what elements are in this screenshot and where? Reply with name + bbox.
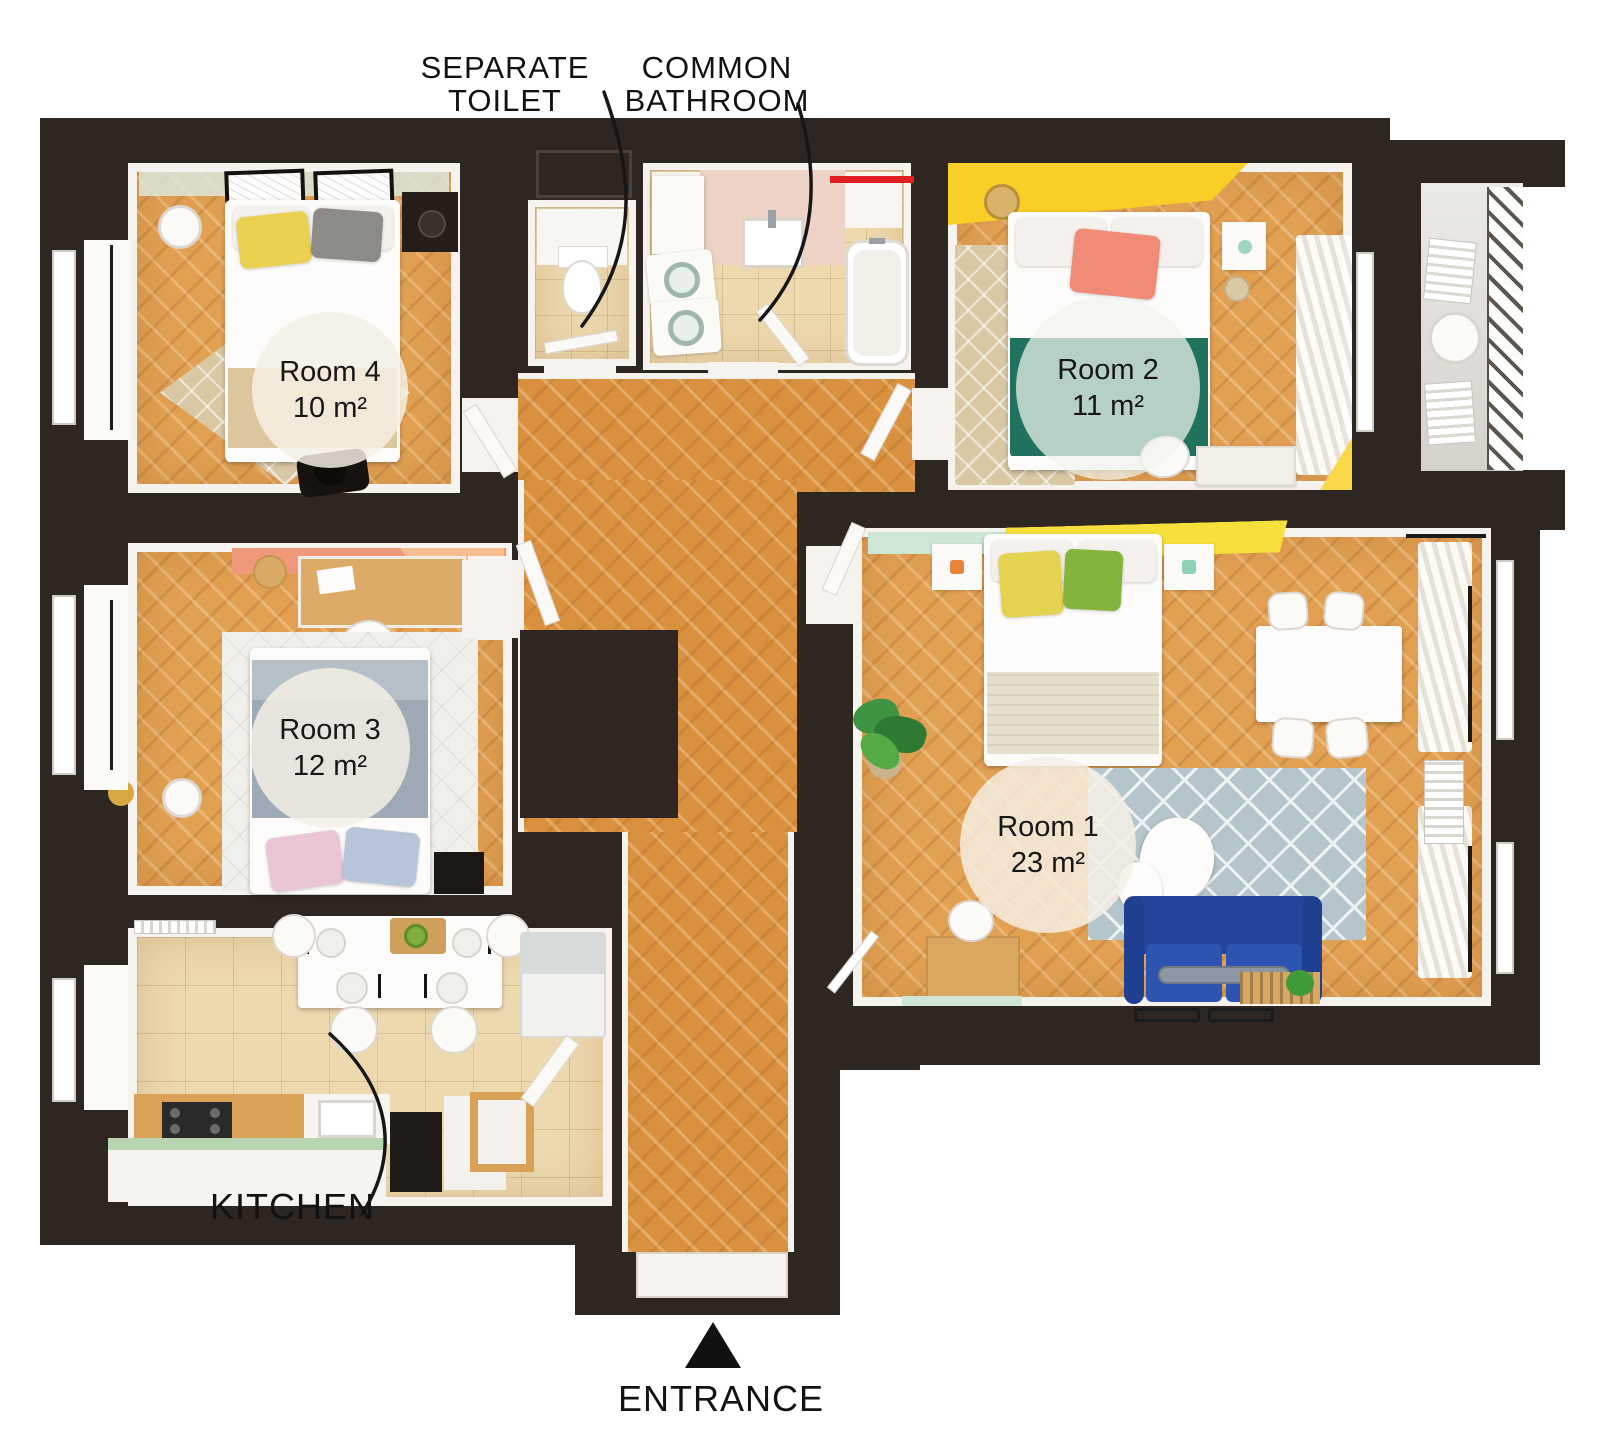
nightstand-decor-icon bbox=[1182, 560, 1196, 574]
plate-icon bbox=[316, 928, 346, 958]
salad-bowl-icon bbox=[404, 924, 428, 948]
bathroom-cabinet bbox=[652, 176, 704, 254]
kitchen-window-sill bbox=[84, 965, 128, 1110]
room4-label: Room 4 10 m² bbox=[252, 312, 408, 468]
clothes-rail-icon bbox=[1406, 534, 1486, 538]
dining-table bbox=[1256, 626, 1402, 722]
window-icon bbox=[1496, 842, 1514, 974]
kitchen-chair bbox=[430, 1006, 478, 1054]
yellow-pillow bbox=[998, 550, 1064, 618]
radiator-icon bbox=[1424, 760, 1464, 844]
dining-chair bbox=[1324, 716, 1370, 760]
window-icon bbox=[52, 595, 76, 775]
kitchen-callout: KITCHEN bbox=[210, 1186, 370, 1228]
kitchen-island-edge bbox=[108, 1138, 386, 1150]
wood-stool-icon bbox=[253, 555, 287, 589]
entrance-callout: ENTRANCE bbox=[618, 1378, 808, 1420]
room3-label: Room 3 12 m² bbox=[250, 668, 410, 828]
window-icon bbox=[1356, 252, 1374, 432]
room3-name: Room 3 bbox=[279, 712, 381, 748]
room3-window-sill bbox=[84, 585, 128, 790]
room2-label: Room 2 11 m² bbox=[1016, 296, 1200, 480]
kitchen-chair bbox=[330, 1006, 378, 1054]
red-towel-bar bbox=[830, 176, 914, 183]
fridge-top bbox=[522, 934, 604, 974]
room1-blanket bbox=[987, 672, 1159, 756]
room1-mint-strip bbox=[902, 996, 1022, 1006]
entrance-arrow-icon bbox=[685, 1322, 741, 1368]
burner-icon bbox=[210, 1124, 220, 1134]
window-icon bbox=[1496, 560, 1514, 740]
kitchen-dark-appliance bbox=[390, 1112, 442, 1192]
balcony-railing bbox=[1487, 187, 1523, 470]
room2-desk bbox=[1196, 446, 1296, 486]
bathtub-inner bbox=[853, 250, 901, 356]
plate-icon bbox=[436, 972, 468, 1004]
kitchen-sink-icon bbox=[318, 1100, 376, 1138]
table-lamp-icon bbox=[418, 210, 446, 238]
kitchen-corner-cabinet-front bbox=[478, 1100, 526, 1164]
basket-icon bbox=[1224, 276, 1250, 302]
burner-icon bbox=[210, 1108, 220, 1118]
plate-icon bbox=[452, 928, 482, 958]
bath-faucet-icon bbox=[869, 238, 885, 244]
room2-area: 11 m² bbox=[1072, 388, 1144, 424]
sofa-armrest bbox=[1124, 896, 1144, 1004]
toilet-niche-outline bbox=[536, 150, 632, 198]
balcony-bench bbox=[1424, 380, 1476, 445]
room2-curtains bbox=[1296, 235, 1352, 475]
cutlery-icon bbox=[378, 974, 381, 998]
balcony-table-icon bbox=[1429, 312, 1481, 364]
separate-toilet-line1: SEPARATE bbox=[400, 52, 610, 83]
plant-icon bbox=[1286, 970, 1314, 996]
toilet-icon bbox=[562, 260, 602, 314]
room1-name: Room 1 bbox=[997, 809, 1099, 845]
dining-chair bbox=[1267, 591, 1310, 632]
side-table-icon bbox=[162, 778, 202, 818]
nightstand-decor-icon bbox=[950, 560, 964, 574]
room1-desk bbox=[926, 936, 1020, 1004]
laundry-basket-icon bbox=[158, 205, 202, 249]
hallway-floor-upper bbox=[518, 373, 915, 492]
room4-name: Room 4 bbox=[279, 354, 381, 390]
room4-area: 10 m² bbox=[293, 390, 367, 426]
hall-wall-mass bbox=[520, 630, 678, 818]
separate-toilet-callout: SEPARATE TOILET bbox=[400, 50, 610, 116]
radiator-icon bbox=[134, 920, 216, 934]
balcony-bench bbox=[1423, 238, 1477, 305]
wall-balcony-bottom bbox=[1390, 470, 1565, 530]
separate-toilet-line2: TOILET bbox=[400, 85, 610, 116]
dining-chair bbox=[1271, 717, 1316, 760]
toilet-door-gap bbox=[544, 362, 616, 378]
window-icon bbox=[52, 250, 76, 425]
room1-area: 23 m² bbox=[1011, 845, 1085, 881]
bathroom-door-gap bbox=[708, 362, 778, 378]
doormat-icon bbox=[1208, 1008, 1274, 1022]
green-pillow bbox=[1062, 549, 1123, 612]
gray-pillow bbox=[310, 208, 383, 263]
curtain-rod-icon bbox=[1468, 586, 1472, 742]
room2-door-gap bbox=[912, 388, 952, 460]
speaker-icon bbox=[434, 852, 484, 894]
desk-paper-icon bbox=[317, 566, 356, 595]
coral-pillow bbox=[1069, 228, 1161, 301]
floor-plan-canvas: Room 4 10 m² Room 2 11 m² bbox=[0, 0, 1600, 1440]
cutlery-icon bbox=[424, 974, 427, 998]
room4-window-sill bbox=[84, 240, 130, 440]
room3-area: 12 m² bbox=[293, 748, 367, 784]
room3-door-gap bbox=[462, 560, 518, 638]
window-icon bbox=[52, 978, 76, 1102]
entrance-door bbox=[636, 1252, 788, 1298]
common-bathroom-line1: COMMON bbox=[612, 52, 822, 83]
blue-pillow bbox=[341, 826, 420, 887]
plate-icon bbox=[336, 972, 368, 1004]
yellow-pillow bbox=[235, 210, 312, 269]
pink-pillow bbox=[265, 829, 346, 893]
entrance-corridor-floor bbox=[622, 832, 794, 1252]
common-bathroom-line2: BATHROOM bbox=[612, 85, 822, 116]
nightstand-plant-icon bbox=[1238, 240, 1252, 254]
kitchen-chair bbox=[272, 914, 316, 958]
curtain-rod-icon bbox=[110, 245, 113, 430]
curtain-rod-icon bbox=[110, 600, 113, 770]
curtain-rod-icon bbox=[1468, 846, 1472, 972]
room1-curtains bbox=[1418, 542, 1472, 752]
burner-icon bbox=[170, 1124, 180, 1134]
room2-name: Room 2 bbox=[1057, 352, 1159, 388]
room1-label: Room 1 23 m² bbox=[960, 757, 1136, 933]
doormat-icon bbox=[1134, 1008, 1200, 1022]
burner-icon bbox=[170, 1108, 180, 1118]
dining-chair bbox=[1322, 590, 1365, 631]
common-bathroom-callout: COMMON BATHROOM bbox=[612, 50, 822, 116]
sink-faucet-icon bbox=[768, 210, 776, 228]
